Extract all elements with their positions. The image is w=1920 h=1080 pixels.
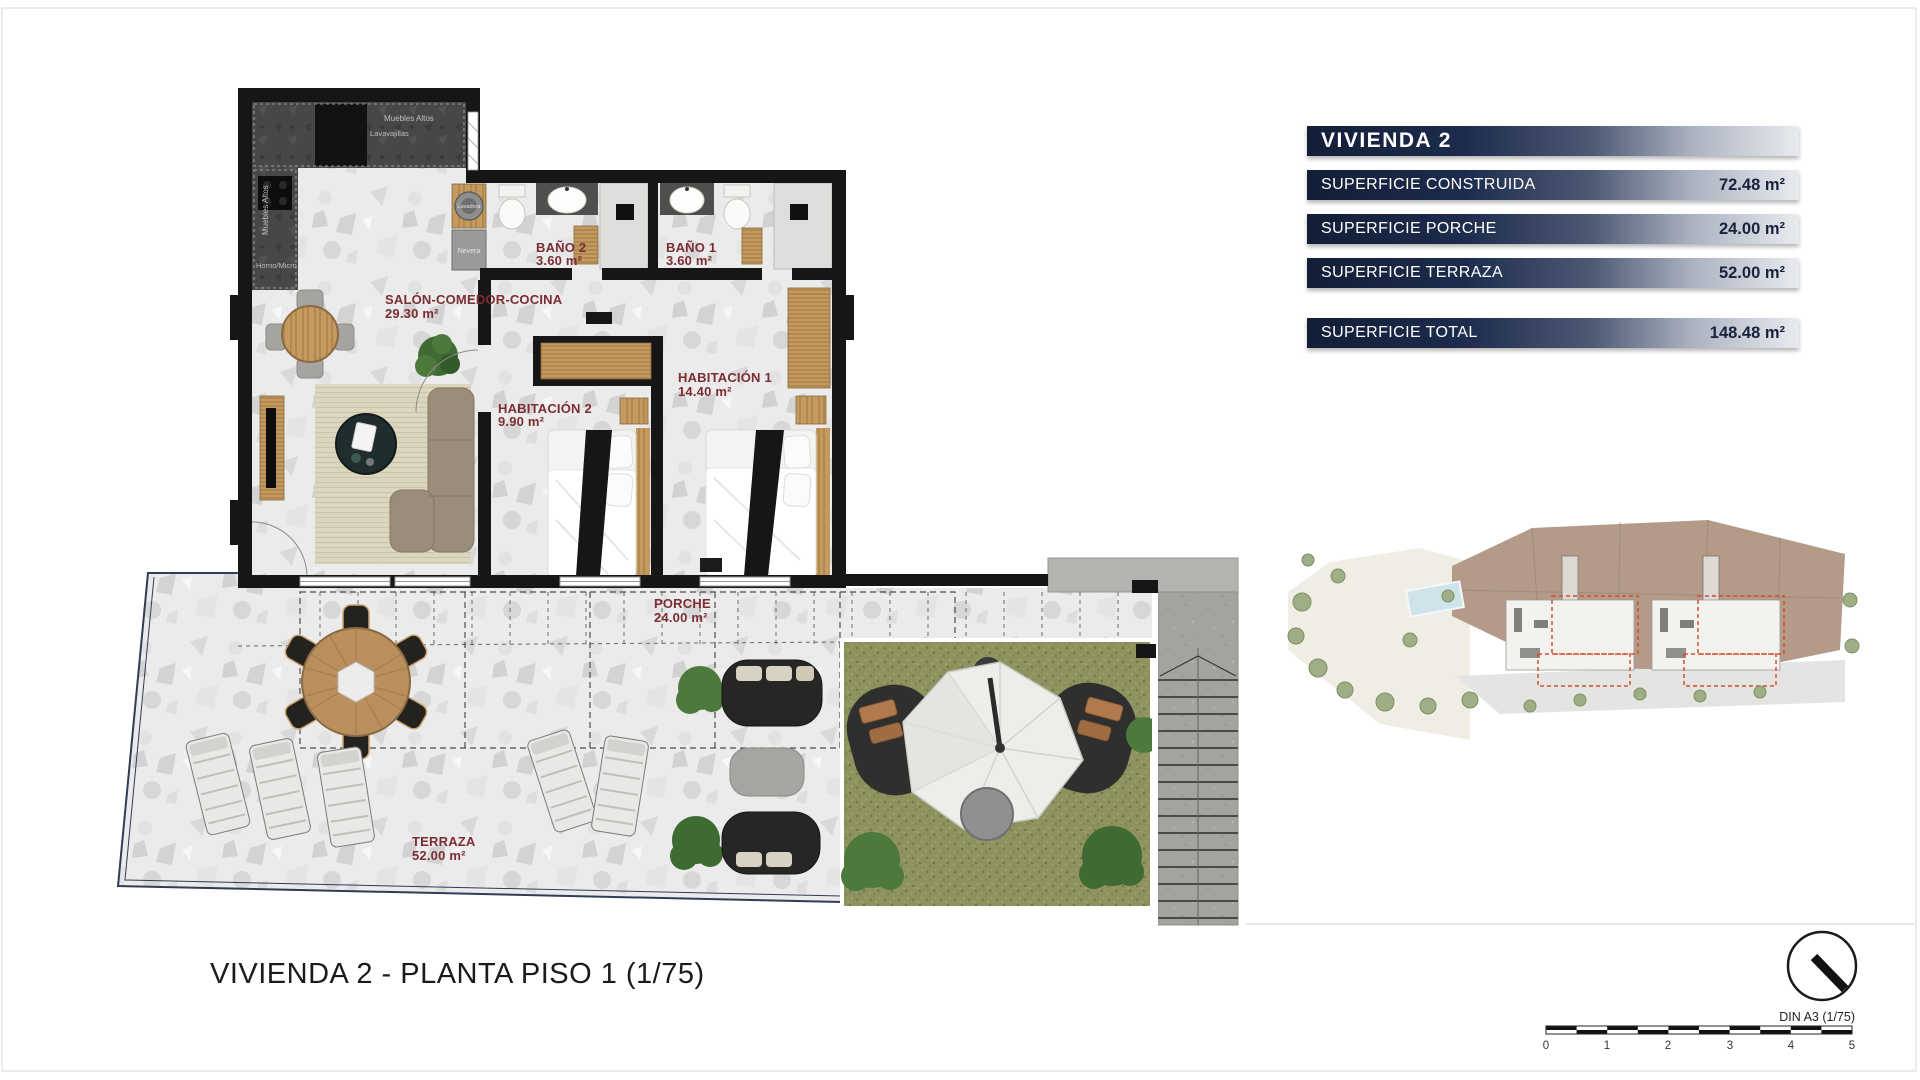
scale-bar: DIN A3 (1/75) 0 1 2 3 4 5 (1543, 1010, 1855, 1052)
summary-row-construida: SUPERFICIE CONSTRUIDA 72.48 m² (1307, 170, 1799, 200)
summary-title: VIVIENDA 2 (1321, 129, 1452, 153)
svg-text:Lavavajillas: Lavavajillas (370, 129, 409, 138)
svg-text:14.40 m²: 14.40 m² (678, 384, 732, 399)
sheet: SALÓN-COMEDOR-COCINA 29.30 m² BAÑO 2 3.6… (0, 0, 1920, 1080)
sheet-note: DIN A3 (1/75) (1779, 1010, 1855, 1024)
svg-text:0: 0 (1543, 1040, 1549, 1052)
walkway-floor (846, 588, 1152, 640)
summary-row-terraza: SUPERFICIE TERRAZA 52.00 m² (1307, 258, 1799, 288)
wardrobe-hab2 (541, 343, 651, 379)
site-minimap (1288, 520, 1859, 740)
svg-text:Lavadora: Lavadora (458, 204, 482, 210)
label-porche: PORCHE (654, 596, 711, 611)
garden-side-table (961, 788, 1013, 840)
svg-text:29.30 m²: 29.30 m² (385, 306, 439, 321)
svg-text:52.00 m²: 52.00 m² (412, 848, 466, 863)
svg-text:24.00 m²: 24.00 m² (654, 610, 708, 625)
north-indicator (1788, 932, 1856, 1000)
svg-text:1: 1 (1604, 1040, 1610, 1052)
label-hab1: HABITACIÓN 1 (678, 370, 772, 385)
svg-text:3.60 m²: 3.60 m² (536, 253, 583, 268)
tv-unit (260, 396, 284, 500)
svg-text:4: 4 (1788, 1040, 1795, 1052)
svg-text:3: 3 (1727, 1040, 1733, 1052)
summary-header: VIVIENDA 2 (1307, 126, 1799, 156)
summary-row-total: SUPERFICIE TOTAL 148.48 m² (1307, 318, 1799, 348)
svg-text:Horno/Micro: Horno/Micro (256, 261, 297, 270)
svg-text:Muebles Altos: Muebles Altos (261, 185, 270, 235)
svg-text:Muebles Altos: Muebles Altos (384, 114, 434, 123)
svg-text:9.90 m²: 9.90 m² (498, 414, 545, 429)
floor-plan-canvas: SALÓN-COMEDOR-COCINA 29.30 m² BAÑO 2 3.6… (0, 0, 1920, 1080)
drawing-title: VIVIENDA 2 - PLANTA PISO 1 (1/75) (210, 958, 705, 991)
label-terraza: TERRAZA (412, 834, 476, 849)
svg-text:Nevera: Nevera (458, 248, 481, 255)
svg-text:2: 2 (1665, 1040, 1671, 1052)
label-salon: SALÓN-COMEDOR-COCINA (385, 292, 563, 307)
svg-text:3.60 m²: 3.60 m² (666, 253, 713, 268)
summary-row-porche: SUPERFICIE PORCHE 24.00 m² (1307, 214, 1799, 244)
minimap-terrain (1288, 548, 1470, 740)
svg-text:5: 5 (1849, 1040, 1855, 1052)
